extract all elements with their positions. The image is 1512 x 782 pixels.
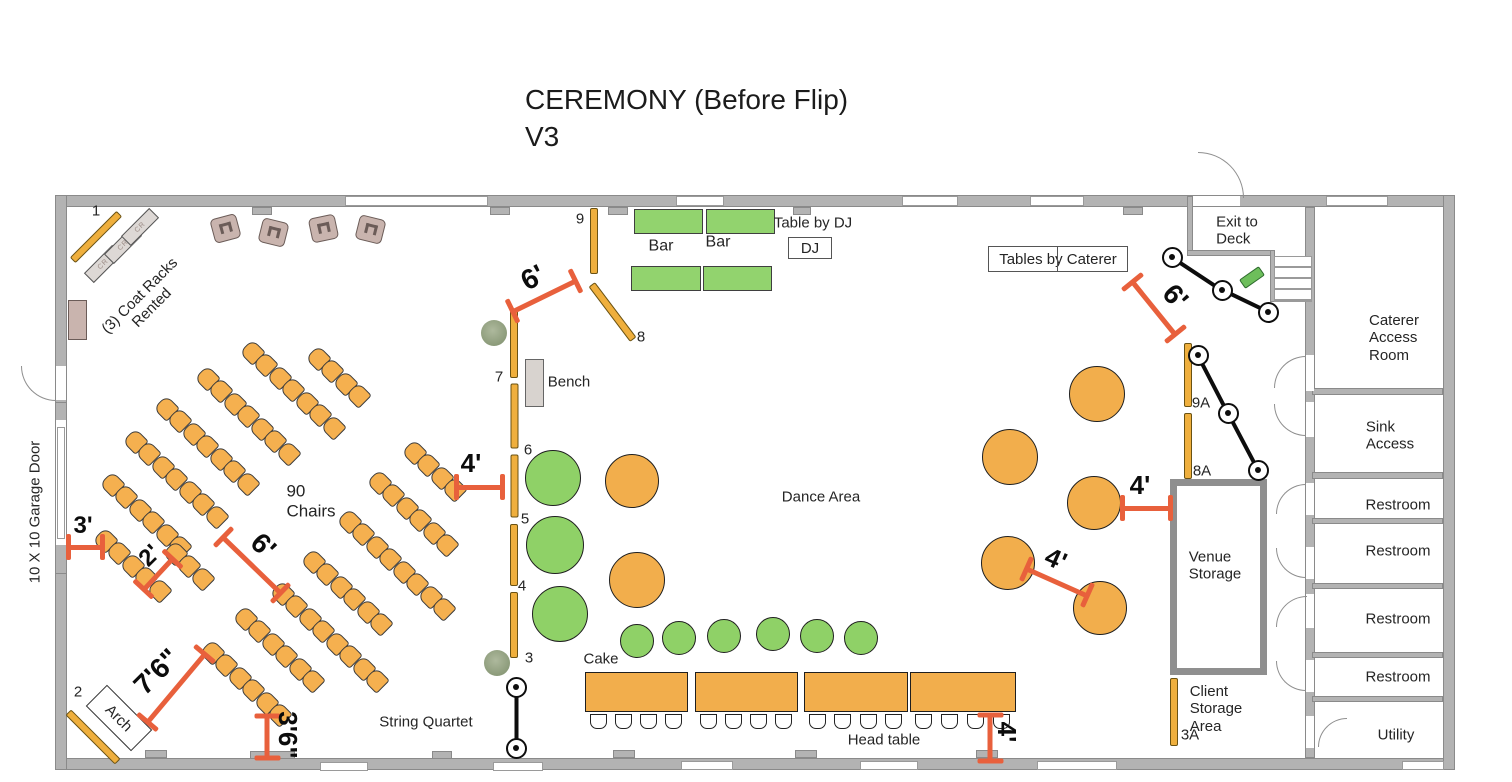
dimension-tick [1120, 495, 1125, 521]
round-table-green [526, 516, 584, 574]
lounge-chair [307, 213, 339, 243]
head-table-chair [750, 714, 767, 729]
head-table-chair [834, 714, 851, 729]
dimension-line [68, 545, 102, 550]
plant [484, 650, 510, 676]
dimension-label: 7'6" [127, 642, 186, 701]
stanchion-pole-center [1265, 309, 1271, 315]
gold-bar [588, 282, 636, 342]
dimension-tick [1168, 495, 1173, 521]
pilaster [795, 750, 817, 758]
wall [1443, 195, 1455, 770]
head-table-chair [809, 714, 826, 729]
bar-table [631, 266, 701, 291]
round-table-green [525, 450, 581, 506]
dimension-label: 4' [1130, 470, 1151, 500]
door-swing-arc [1274, 404, 1306, 436]
cake-label: Cake [583, 650, 618, 667]
lounge-chair-seat [363, 222, 377, 235]
stanchion-pole-center [1255, 467, 1261, 473]
plan-title-line1: CEREMONY (Before Flip) [525, 82, 848, 119]
plant [481, 320, 507, 346]
dimension-tick [977, 713, 1003, 718]
round-table-green [532, 586, 588, 642]
wall [1312, 388, 1443, 395]
stanchion-pole [1218, 403, 1239, 424]
head-table-chair [885, 714, 902, 729]
door-swing-arc [1276, 548, 1306, 578]
head-table-chair [590, 714, 607, 729]
bar-table [706, 209, 775, 234]
pilaster [608, 207, 628, 215]
stanchion-pole [506, 677, 527, 698]
wall-opening [1306, 594, 1314, 628]
door-swing-arc [1274, 356, 1306, 388]
stanchion-pole-center [1225, 410, 1231, 416]
caterer-access-room-label: Caterer Access Room [1369, 312, 1419, 364]
gold-bar [510, 455, 518, 518]
window [902, 196, 958, 206]
lounge-chair-seat [218, 221, 232, 234]
head-table [695, 672, 798, 712]
door-swing-arc [1318, 718, 1347, 747]
pilaster [490, 207, 510, 215]
round-table-orange [609, 552, 665, 608]
dimension-tick [500, 474, 505, 500]
marker-4: 4 [518, 577, 526, 594]
deck-item [1239, 266, 1265, 289]
pilaster [252, 207, 272, 215]
stanchion-pole [1258, 302, 1279, 323]
dimension-label: 3' [73, 512, 92, 540]
head-table-chair [775, 714, 792, 729]
dimension-label: 4' [992, 722, 1022, 743]
bar-label-1: Bar [649, 238, 674, 257]
pilaster [613, 750, 635, 758]
lounge-chair [354, 214, 386, 245]
utility-label: Utility [1378, 726, 1415, 743]
gold-bar [1170, 678, 1178, 746]
wall [1312, 696, 1443, 702]
wall [1312, 472, 1443, 479]
window [345, 196, 488, 206]
cocktail-table [707, 619, 741, 653]
head-table-chair [640, 714, 657, 729]
stanchion-pole-center [1169, 254, 1175, 260]
restroom-label-4: Restroom [1365, 668, 1430, 685]
window [1326, 196, 1388, 206]
lounge-chair [257, 217, 289, 248]
marker-5: 5 [521, 510, 529, 527]
table-by-dj-label: Table by DJ [774, 214, 852, 231]
exit-to-deck-label: Exit to Deck [1216, 214, 1258, 249]
marker-7: 7 [495, 368, 503, 385]
dimension-label: 3'6" [273, 711, 303, 758]
head-table [804, 672, 908, 712]
wall-opening [1306, 547, 1314, 579]
lounge-chair-seat [316, 221, 330, 233]
marker-8: 8 [637, 328, 645, 345]
dimension-label: 4' [1040, 541, 1071, 577]
round-table-orange [1069, 366, 1125, 422]
wall [1312, 583, 1443, 589]
head-table-chair [665, 714, 682, 729]
sink-access-label: Sink Access [1366, 419, 1414, 454]
wall [1187, 250, 1273, 256]
window [681, 761, 733, 770]
dimension-line [456, 485, 502, 490]
door-swing-arc [21, 366, 56, 401]
marker-1: 1 [92, 202, 100, 219]
door-swing-arc [1198, 152, 1244, 198]
head-table-chair [725, 714, 742, 729]
dimension-label: 6' [1155, 278, 1194, 316]
gold-bar [510, 384, 518, 449]
round-table-orange [982, 429, 1038, 485]
bar-table [703, 266, 772, 291]
wall-opening [1306, 355, 1314, 391]
head-table-chair [941, 714, 958, 729]
restroom-label-1: Restroom [1365, 496, 1430, 513]
floor-plan: CEREMONY (Before Flip) V3 DJTables by Ca… [0, 0, 1512, 782]
stanchion-pole-center [513, 684, 519, 690]
window [1402, 761, 1444, 770]
head-table-chair [860, 714, 877, 729]
stanchion-pole [1188, 345, 1209, 366]
bench-label: Bench [548, 373, 591, 390]
round-table-orange [1073, 581, 1127, 635]
cocktail-table [844, 621, 878, 655]
stanchion-pole [506, 738, 527, 759]
bar-label-2: Bar [706, 234, 731, 253]
string-quartet-label: String Quartet [379, 713, 472, 730]
dimension-tick [100, 534, 105, 560]
venue-storage-label: Venue Storage [1189, 549, 1242, 584]
stanchion-pole [1212, 280, 1233, 301]
dimension-label: 4' [461, 448, 482, 478]
wall-opening [1306, 483, 1314, 515]
wall-opening [56, 366, 66, 400]
window [57, 427, 65, 539]
caterer-tables-box: Tables by Caterer [988, 246, 1128, 272]
cocktail-table [756, 617, 790, 651]
window [860, 761, 918, 770]
cocktail-table [662, 621, 696, 655]
window [1037, 761, 1117, 770]
wall-opening [1306, 402, 1314, 437]
stanchion-pole-center [513, 745, 519, 751]
window [493, 762, 543, 771]
gold-bar [510, 592, 518, 658]
head-table [910, 672, 1016, 712]
dimension-tick [977, 759, 1003, 764]
wall [55, 195, 1455, 207]
door-swing-arc [1276, 484, 1306, 514]
wall [1312, 652, 1443, 658]
door-swing-arc [1276, 596, 1307, 627]
marker-9a: 9A [1192, 394, 1210, 411]
head-table-chair [915, 714, 932, 729]
restroom-label-3: Restroom [1365, 610, 1430, 627]
wall-opening [1306, 716, 1314, 748]
stanchion-pole [1162, 247, 1183, 268]
chair-count-label: 90 Chairs [286, 481, 335, 520]
marker-8a: 8A [1193, 462, 1211, 479]
pilaster [1123, 207, 1143, 215]
window [676, 196, 724, 206]
stanchion-pole [1248, 460, 1269, 481]
stairs [1274, 256, 1312, 302]
client-storage-label: Client Storage Area [1190, 683, 1243, 735]
stanchion-pole-center [1219, 287, 1225, 293]
coat-rack: CR [121, 208, 159, 246]
side-table [68, 300, 87, 340]
marker-9: 9 [576, 210, 584, 227]
gold-bar [1184, 413, 1192, 479]
dimension-tick [66, 534, 71, 560]
caterer-tables-label: Tables by Caterer [999, 251, 1117, 268]
wall [1312, 518, 1443, 524]
wall-opening [1306, 660, 1314, 692]
pilaster [145, 750, 167, 758]
plan-title: CEREMONY (Before Flip) V3 [525, 82, 848, 156]
gold-bar [510, 524, 518, 586]
lounge-chair [209, 212, 242, 243]
lounge-chair-seat [266, 225, 280, 238]
round-table-orange [1067, 476, 1121, 530]
round-table-orange [605, 454, 659, 508]
cocktail-table [800, 619, 834, 653]
dimension-line [1122, 506, 1170, 511]
pilaster [432, 751, 452, 759]
head-table [585, 672, 688, 712]
marker-2: 2 [74, 683, 82, 700]
restroom-label-2: Restroom [1365, 542, 1430, 559]
garage-door-label: 10 X 10 Garage Door [26, 441, 43, 584]
window [320, 762, 368, 771]
bench [525, 359, 544, 407]
door-swing-arc [1276, 661, 1306, 691]
window [1030, 196, 1084, 206]
dimension-line [265, 716, 270, 758]
bar-table [634, 209, 703, 234]
dance-area-label: Dance Area [782, 488, 860, 505]
head-table-label: Head table [848, 731, 921, 748]
dj-table: DJ [788, 237, 832, 259]
plan-title-line2: V3 [525, 119, 848, 156]
coat-racks-note: (3) Coat Racks Rented [98, 254, 193, 349]
marker-6: 6 [524, 441, 532, 458]
gold-bar [590, 208, 598, 274]
stanchion-pole-center [1195, 352, 1201, 358]
head-table-chair [700, 714, 717, 729]
head-table-chair [615, 714, 632, 729]
dimension-tick [454, 474, 459, 500]
caterer-box-divider [1057, 247, 1058, 271]
cocktail-table [620, 624, 654, 658]
marker-3: 3 [525, 649, 533, 666]
